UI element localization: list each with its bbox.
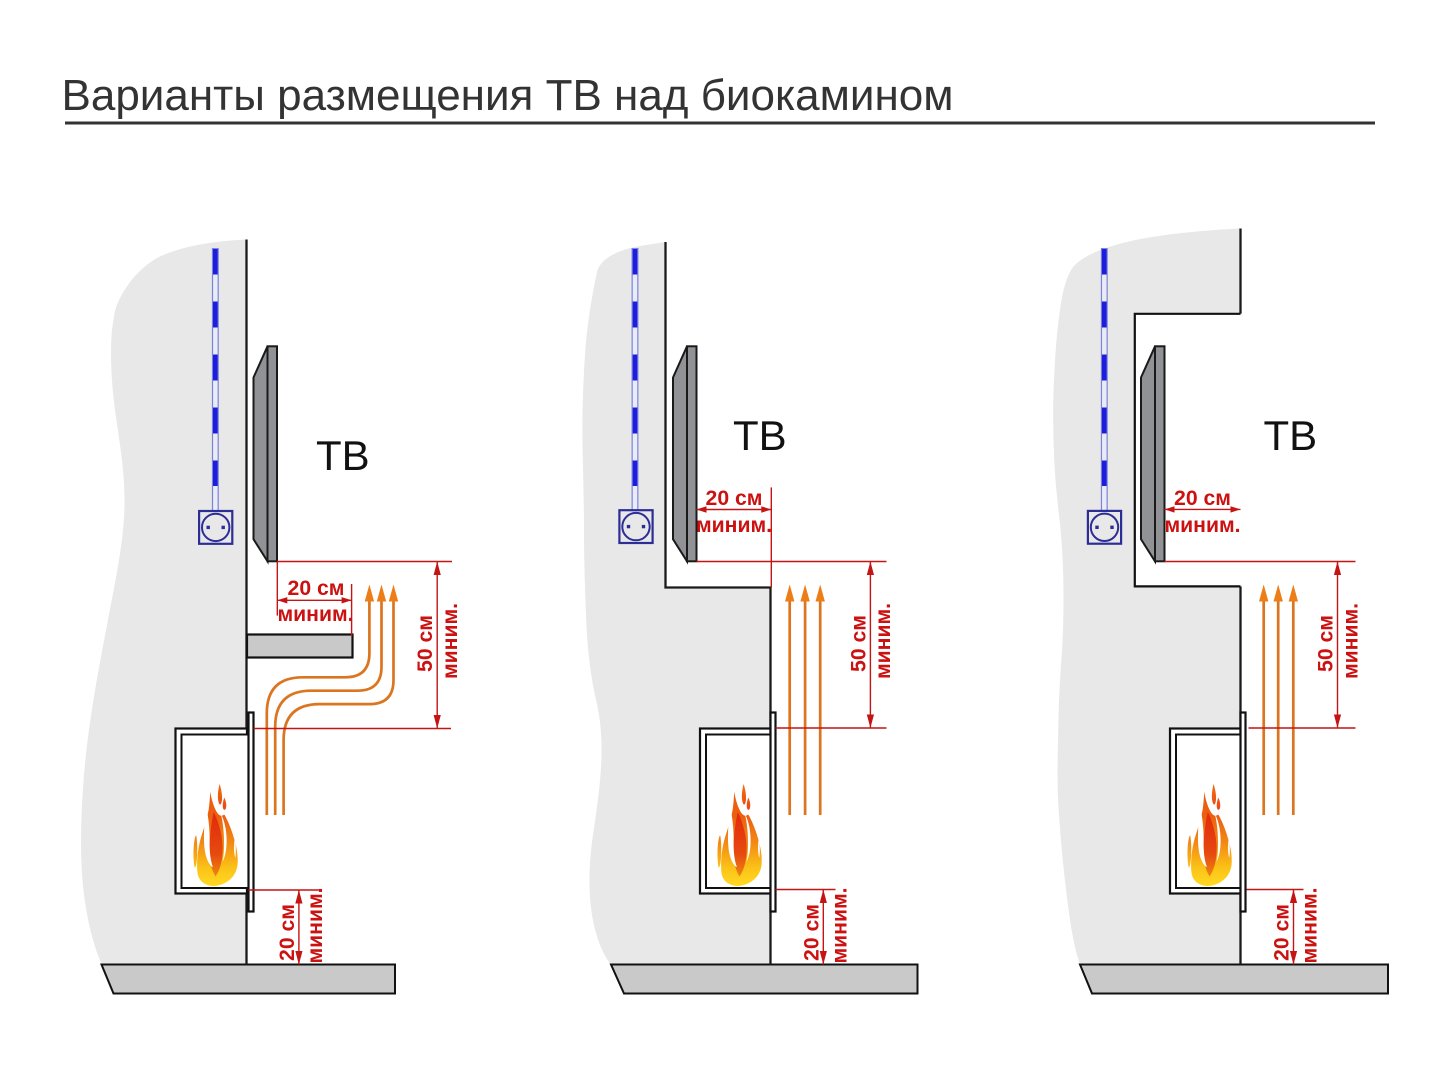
svg-text:ТВ: ТВ xyxy=(1264,412,1318,459)
svg-text:миним.: миним. xyxy=(696,514,772,537)
svg-text:миним.: миним. xyxy=(872,603,895,679)
svg-text:ТВ: ТВ xyxy=(316,432,370,479)
svg-text:миним.: миним. xyxy=(277,603,353,626)
svg-text:20 см: 20 см xyxy=(288,577,345,600)
svg-text:50 см: 50 см xyxy=(1315,615,1338,672)
svg-text:50 см: 50 см xyxy=(414,615,437,672)
svg-text:миним.: миним. xyxy=(1339,603,1362,679)
svg-text:20 см: 20 см xyxy=(1271,904,1294,961)
svg-text:20 см: 20 см xyxy=(1174,487,1231,510)
svg-text:20 см: 20 см xyxy=(276,904,299,961)
svg-text:20 см: 20 см xyxy=(800,904,823,961)
svg-text:миним.: миним. xyxy=(1299,887,1322,963)
svg-text:миним.: миним. xyxy=(1164,514,1240,537)
svg-text:ТВ: ТВ xyxy=(733,412,787,459)
svg-text:миним.: миним. xyxy=(304,887,327,963)
svg-text:20 см: 20 см xyxy=(706,487,763,510)
svg-text:Варианты размещения ТВ над био: Варианты размещения ТВ над биокамином xyxy=(62,71,954,120)
svg-text:миним.: миним. xyxy=(828,887,851,963)
svg-text:миним.: миним. xyxy=(439,603,462,679)
svg-text:50 см: 50 см xyxy=(847,615,870,672)
